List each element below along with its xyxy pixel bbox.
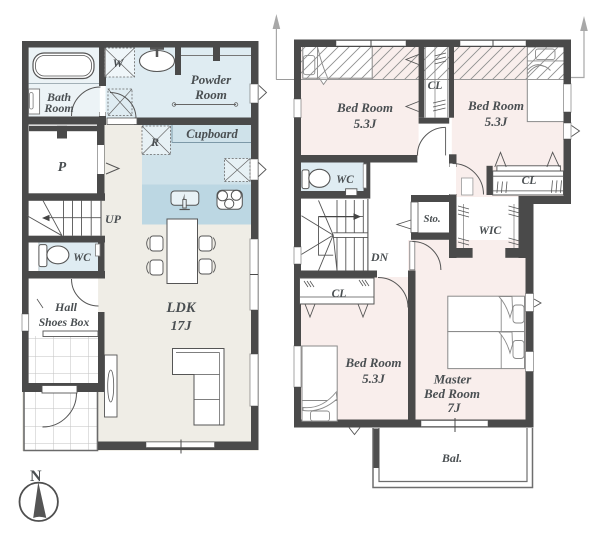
svg-text:WC: WC <box>73 252 91 264</box>
svg-text:Powder: Powder <box>191 72 232 87</box>
svg-text:WC: WC <box>336 174 354 186</box>
svg-text:Shoes Box: Shoes Box <box>39 316 90 329</box>
svg-text:5.3J: 5.3J <box>485 114 508 129</box>
svg-text:DN: DN <box>370 250 390 264</box>
svg-text:WIC: WIC <box>479 224 502 237</box>
svg-text:CL: CL <box>522 174 537 187</box>
svg-text:Bed Room: Bed Room <box>423 386 480 401</box>
svg-text:7J: 7J <box>448 400 462 415</box>
svg-text:Cupboard: Cupboard <box>186 127 238 141</box>
svg-text:Bed Room: Bed Room <box>345 355 402 370</box>
svg-text:17J: 17J <box>171 318 193 333</box>
svg-text:N: N <box>30 468 42 485</box>
svg-text:Bed Room: Bed Room <box>336 100 393 115</box>
svg-text:R: R <box>150 135 159 149</box>
svg-text:Master: Master <box>433 372 473 387</box>
svg-text:CL: CL <box>332 287 347 300</box>
svg-text:Hall: Hall <box>54 300 78 314</box>
svg-text:UP: UP <box>105 212 122 226</box>
svg-text:P: P <box>58 159 67 174</box>
svg-text:Room: Room <box>194 87 227 102</box>
svg-text:W: W <box>113 56 125 70</box>
svg-text:5.3J: 5.3J <box>362 371 385 386</box>
svg-text:Bed Room: Bed Room <box>467 98 524 113</box>
svg-text:5.3J: 5.3J <box>354 116 377 131</box>
svg-text:Sto.: Sto. <box>423 213 440 225</box>
svg-text:CL: CL <box>428 79 443 92</box>
svg-text:Room: Room <box>43 101 73 115</box>
svg-text:Bal.: Bal. <box>441 451 462 465</box>
svg-text:LDK: LDK <box>166 300 197 316</box>
